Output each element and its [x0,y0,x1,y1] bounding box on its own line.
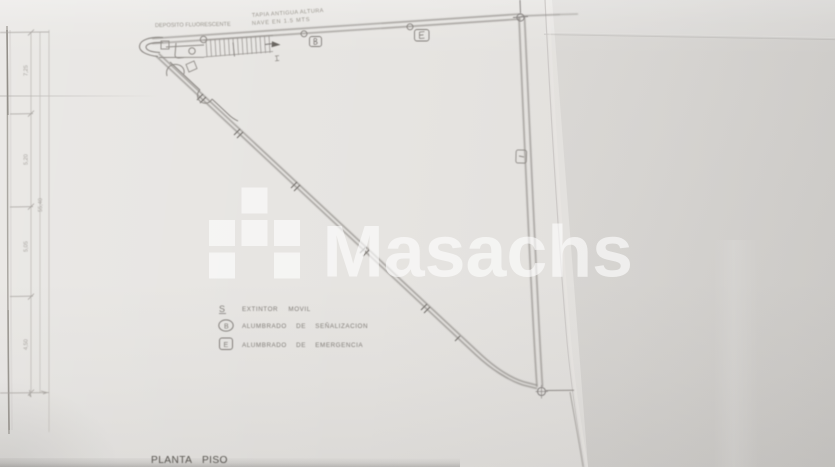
svg-text:Masachs: Masachs [323,209,634,292]
